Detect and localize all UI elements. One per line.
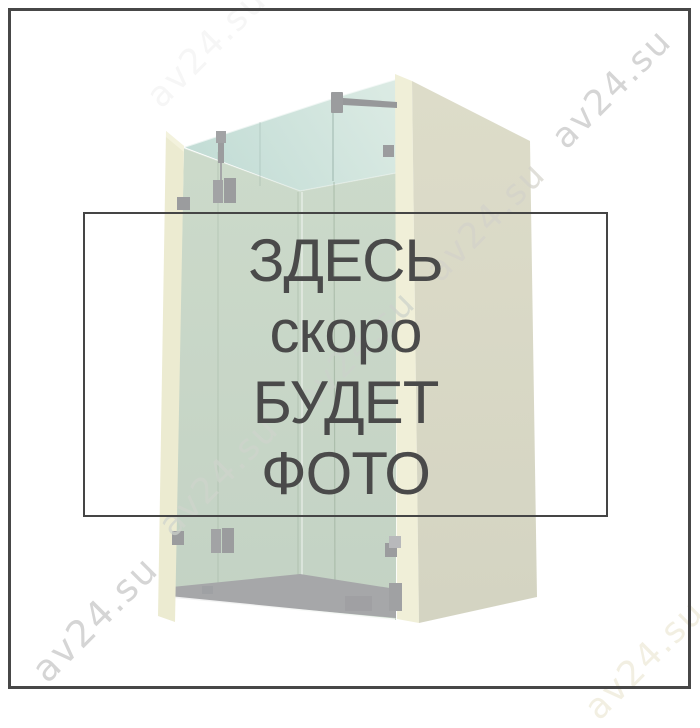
hinge-plate-top-right	[224, 178, 236, 203]
placeholder-line-3: БУДЕТ	[253, 367, 439, 438]
placeholder-product-image: { "placeholder_panel": { "lines": ["ЗДЕС…	[0, 0, 700, 700]
placeholder-line-2: скоро	[269, 296, 421, 367]
floor-drain-shadow	[345, 596, 372, 611]
support-bar-clamp	[331, 92, 343, 113]
wall-bracket-top-left	[177, 197, 190, 210]
placeholder-line-1: ЗДЕСЬ	[248, 225, 443, 296]
hinge-plate-top-left	[213, 180, 223, 203]
wall-bracket-top-right	[383, 145, 394, 157]
wall-post-cap	[216, 131, 226, 143]
glass-edge-fitting-upper	[389, 536, 401, 548]
floor-bracket	[202, 586, 213, 594]
photo-coming-soon-panel: ЗДЕСЬ скоро БУДЕТ ФОТО	[83, 212, 608, 517]
placeholder-line-4: ФОТО	[261, 438, 430, 509]
wall-post	[218, 143, 224, 163]
image-canvas: av24.su av24.su av24.su av24.su av24.su …	[0, 0, 700, 700]
glass-edge-fitting-lower	[389, 583, 402, 611]
hinge-plate-bottom-right	[222, 528, 234, 553]
hinge-plate-bottom-left	[211, 529, 221, 553]
